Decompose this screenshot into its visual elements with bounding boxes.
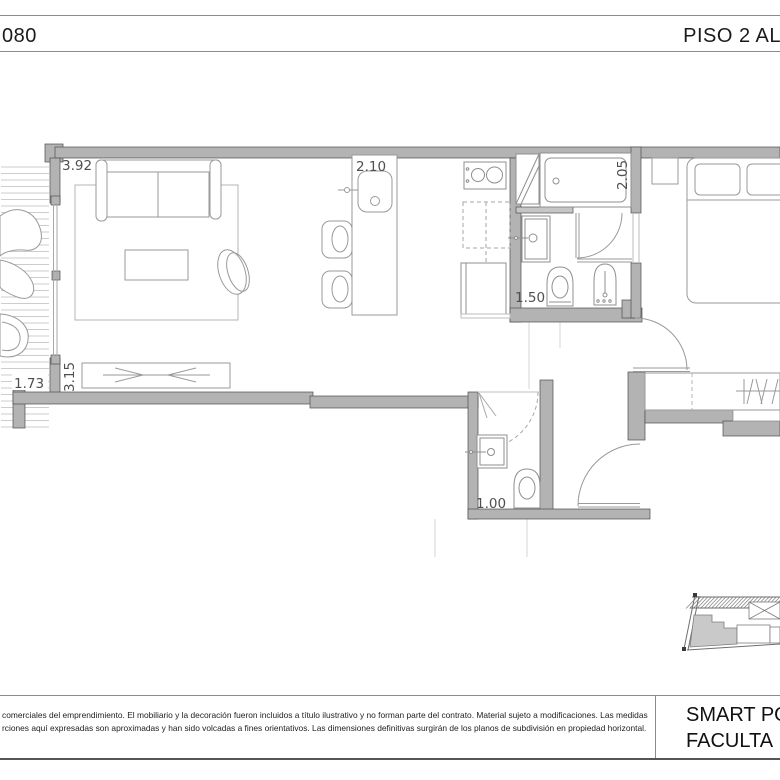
footer-bottom-rule — [0, 758, 780, 760]
disclaimer: comerciales del emprendimiento. El mobil… — [2, 709, 650, 735]
balcony-chair — [0, 314, 28, 357]
sofa — [96, 160, 221, 221]
niche — [733, 409, 780, 421]
dim-balcony-width: 1.73 — [14, 376, 44, 392]
dim-media-wall: 3.15 — [62, 362, 78, 392]
refrigerator — [461, 263, 510, 318]
nightstand — [652, 158, 678, 184]
wardrobe — [645, 373, 780, 410]
bar-stools — [322, 221, 352, 308]
dim-kitchen-island: 2.10 — [356, 159, 386, 175]
floorplan-sheet: { "header": { "left_code": "080", "right… — [0, 0, 780, 780]
hall-door — [578, 444, 640, 507]
coffee-table — [125, 250, 188, 280]
bathroom-bedroom-opening — [633, 214, 639, 262]
toilet — [547, 267, 573, 306]
key-plan — [682, 593, 780, 651]
bedroom-door — [633, 318, 690, 372]
floor-plan: 3.92 1.73 3.15 2.10 2.05 1.50 1.00 — [0, 0, 780, 780]
dim-bathroom-length: 2.05 — [615, 160, 631, 190]
disclaimer-line-1: comerciales del emprendimiento. El mobil… — [2, 709, 650, 722]
balcony-lounge-chair — [0, 210, 41, 299]
keyplan-core-x — [749, 602, 780, 619]
project-title-block: SMART PO FACULTA — [686, 702, 780, 754]
project-name-line-2: FACULTA — [686, 728, 780, 754]
shower-corner — [516, 154, 539, 204]
keyplan-highlighted-unit — [690, 615, 737, 647]
bidet — [594, 264, 616, 305]
disclaimer-line-2: rciones aquí expresadas son aproximadas … — [2, 722, 650, 735]
dim-bathroom-width: 1.50 — [515, 290, 545, 306]
accent-chair — [213, 246, 254, 298]
cooktop — [464, 162, 506, 189]
footer-divider — [655, 695, 656, 759]
bathroom-door — [576, 213, 632, 262]
dim-living-width: 3.92 — [62, 158, 92, 174]
tv-sideboard — [82, 363, 230, 388]
dim-toilette-width: 1.00 — [476, 496, 506, 512]
toilette-toilet — [514, 469, 540, 508]
bed — [687, 158, 780, 303]
project-name-line-1: SMART PO — [686, 702, 780, 728]
footer-top-rule — [0, 695, 780, 696]
